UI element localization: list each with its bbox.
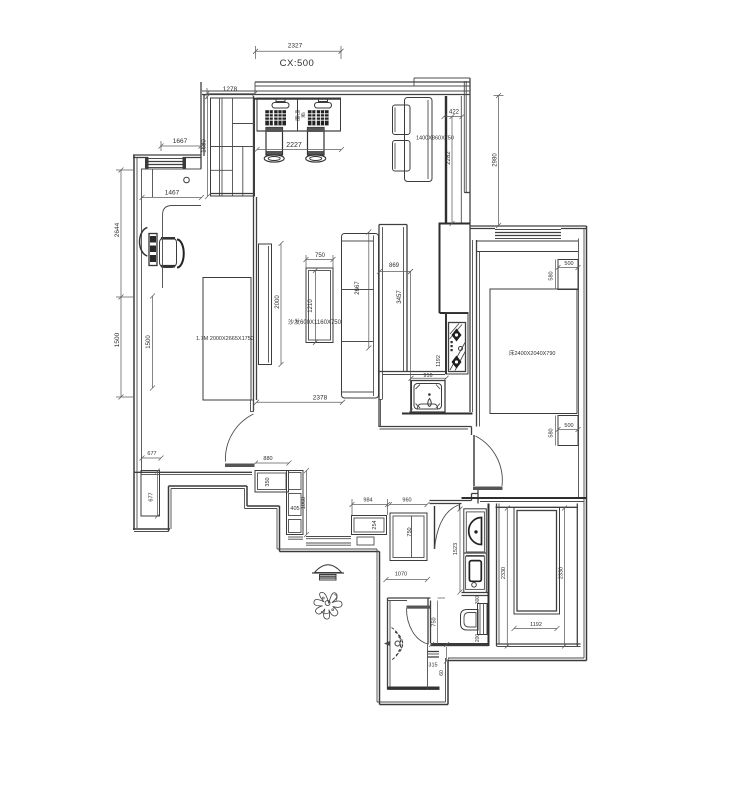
svg-text:300: 300 <box>475 596 481 605</box>
svg-text:60: 60 <box>439 670 445 676</box>
svg-text:2644: 2644 <box>114 222 121 237</box>
svg-text:1667: 1667 <box>173 138 188 145</box>
svg-text:1680: 1680 <box>202 139 208 153</box>
svg-text:869: 869 <box>389 263 400 269</box>
svg-text:2327: 2327 <box>288 43 303 50</box>
svg-text:2000: 2000 <box>275 295 281 309</box>
svg-text:677: 677 <box>149 492 155 501</box>
svg-text:2282: 2282 <box>446 151 452 165</box>
svg-text:1523: 1523 <box>453 543 459 555</box>
svg-text:沙发600X1160X750: 沙发600X1160X750 <box>288 318 342 326</box>
svg-text:960: 960 <box>402 498 411 504</box>
svg-text:2378: 2378 <box>313 395 328 402</box>
svg-text:1192: 1192 <box>530 622 542 628</box>
svg-text:580: 580 <box>549 428 555 437</box>
svg-text:1.7M 2000X2665X1750: 1.7M 2000X2665X1750 <box>196 336 254 342</box>
svg-text:984: 984 <box>363 498 372 504</box>
svg-text:350: 350 <box>265 477 271 486</box>
svg-text:2667: 2667 <box>355 281 361 295</box>
svg-text:电: 电 <box>295 109 300 116</box>
svg-text:1278: 1278 <box>223 86 238 93</box>
svg-text:2227: 2227 <box>286 142 302 149</box>
svg-text:脑: 脑 <box>295 115 300 122</box>
svg-text:916: 916 <box>423 373 432 379</box>
svg-text:315: 315 <box>428 663 437 669</box>
svg-text:1060: 1060 <box>301 497 307 509</box>
svg-text:254: 254 <box>372 520 378 529</box>
svg-text:750: 750 <box>315 253 326 259</box>
svg-text:750: 750 <box>407 527 413 536</box>
svg-text:2330: 2330 <box>501 567 507 579</box>
svg-text:CX:500: CX:500 <box>280 58 315 69</box>
svg-text:1400X860X750: 1400X860X750 <box>416 136 454 142</box>
svg-text:1500: 1500 <box>146 335 152 349</box>
svg-text:2980: 2980 <box>493 153 499 167</box>
svg-text:677: 677 <box>147 451 156 457</box>
svg-text:1467: 1467 <box>165 190 180 197</box>
svg-text:桌: 桌 <box>301 112 306 119</box>
svg-text:1210: 1210 <box>308 299 314 313</box>
svg-text:580: 580 <box>549 271 555 280</box>
svg-text:2330: 2330 <box>559 567 565 579</box>
svg-text:1070: 1070 <box>395 572 407 578</box>
svg-text:405: 405 <box>290 506 299 512</box>
svg-text:500: 500 <box>564 423 573 429</box>
svg-text:200: 200 <box>475 634 481 643</box>
svg-text:1500: 1500 <box>114 332 121 347</box>
svg-text:3457: 3457 <box>397 290 403 304</box>
svg-text:880: 880 <box>263 456 272 462</box>
svg-text:750: 750 <box>432 617 438 626</box>
svg-text:床2400X2040X790: 床2400X2040X790 <box>509 349 555 357</box>
svg-text:500: 500 <box>564 261 573 267</box>
svg-text:1192: 1192 <box>436 355 442 367</box>
